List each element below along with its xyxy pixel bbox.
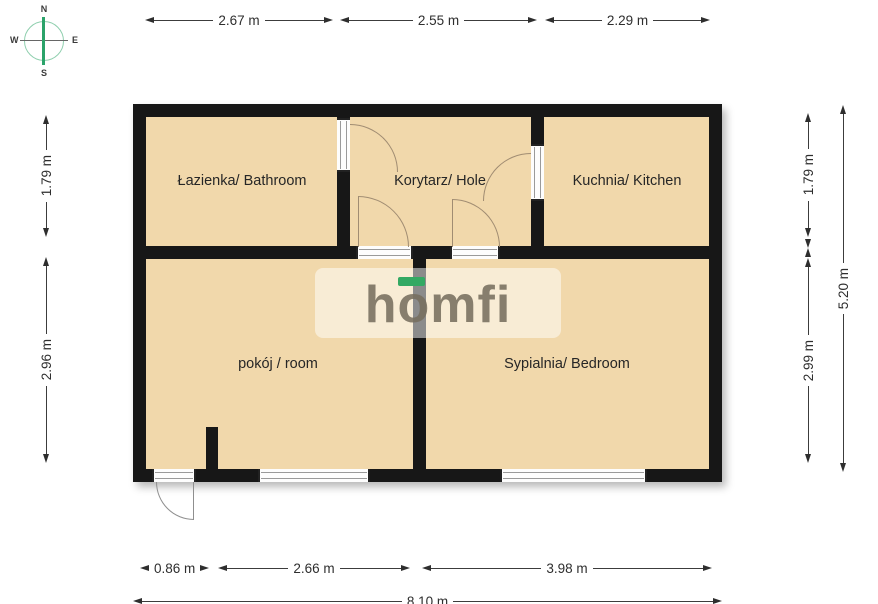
dimension-top-kitchen: 2.29 m bbox=[545, 10, 710, 30]
compass-east-label: E bbox=[72, 35, 78, 45]
dimension-label: 3.98 m bbox=[541, 561, 592, 576]
dimension-label: 1.79 m bbox=[39, 150, 54, 201]
dimension-bottom-entry: 0.86 m bbox=[140, 558, 208, 578]
room-label-bathroom: Łazienka/ Bathroom bbox=[178, 173, 307, 189]
bedroom-window-symbol bbox=[500, 469, 647, 482]
dimension-bottom-room: 2.66 m bbox=[218, 558, 410, 578]
room-label-bedroom: Sypialnia/ Bedroom bbox=[504, 356, 630, 372]
dimension-right-bedroom: 2.99 m bbox=[798, 258, 818, 463]
homfi-watermark: homfi bbox=[315, 268, 561, 338]
entry-wall-stub bbox=[206, 427, 218, 473]
bedroom-door-threshold bbox=[450, 246, 500, 259]
entry-door-swing-arc bbox=[156, 482, 194, 520]
dimension-label: 0.86 m bbox=[149, 561, 200, 576]
compass-north-label: N bbox=[12, 4, 76, 14]
homfi-logo-text: homfi bbox=[365, 279, 512, 331]
dimension-label: 2.99 m bbox=[801, 335, 816, 386]
dimension-label: 2.29 m bbox=[602, 13, 653, 28]
dimension-label: 2.55 m bbox=[413, 13, 464, 28]
dimension-label: 2.67 m bbox=[213, 13, 264, 28]
dimension-right-kitchen: 1.79 m bbox=[798, 113, 818, 237]
dimension-top-bathroom: 2.67 m bbox=[145, 10, 333, 30]
dimension-left-bathroom: 1.79 m bbox=[36, 115, 56, 237]
dimension-label: 2.66 m bbox=[288, 561, 339, 576]
compass-north-needle bbox=[42, 17, 45, 65]
compass-west-label: W bbox=[10, 35, 19, 45]
dimension-label: 2.96 m bbox=[39, 334, 54, 385]
dimension-label: 5.20 m bbox=[836, 263, 851, 314]
room-label-kitchen: Kuchnia/ Kitchen bbox=[573, 173, 682, 189]
room-label-room: pokój / room bbox=[238, 356, 318, 372]
dimension-right-total: 5.20 m bbox=[833, 105, 853, 472]
compass-south-label: S bbox=[12, 68, 76, 78]
kitchen-door-panel bbox=[531, 144, 544, 201]
room-door-threshold bbox=[356, 246, 413, 259]
wall-thickness-marker bbox=[798, 239, 818, 256]
room-window-symbol bbox=[258, 469, 370, 482]
entry-door-threshold bbox=[152, 469, 196, 482]
dimension-label: 8.10 m bbox=[402, 594, 453, 604]
dimension-left-room: 2.96 m bbox=[36, 257, 56, 463]
dimension-label: 1.79 m bbox=[801, 149, 816, 200]
dimension-bottom-total: 8.10 m bbox=[133, 591, 722, 604]
bathroom-door-panel bbox=[337, 118, 350, 172]
dimension-top-hall: 2.55 m bbox=[340, 10, 537, 30]
compass-rose-icon: N S W E bbox=[12, 4, 76, 82]
floor-plan-page: N S W E 2.67 m 2.55 m 2.29 m 1.79 m 2.96… bbox=[0, 0, 878, 604]
homfi-logo-accent-bar bbox=[398, 277, 425, 286]
room-label-hall: Korytarz/ Hole bbox=[394, 173, 486, 189]
dimension-bottom-bedroom: 3.98 m bbox=[422, 558, 712, 578]
